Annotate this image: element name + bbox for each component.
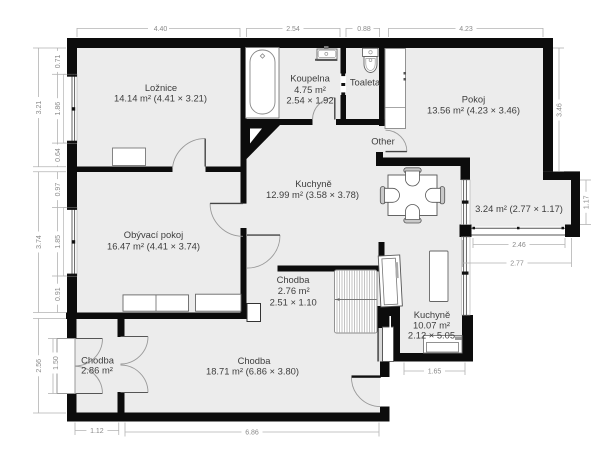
- svg-text:0.97: 0.97: [55, 183, 62, 197]
- svg-text:Obývací pokoj: Obývací pokoj: [124, 229, 183, 240]
- svg-text:2.86 m²: 2.86 m²: [81, 365, 113, 376]
- svg-text:4.40: 4.40: [154, 26, 168, 33]
- svg-text:Pokoj: Pokoj: [462, 94, 485, 105]
- svg-text:0.64: 0.64: [55, 148, 62, 162]
- svg-text:2.12 × 5.05: 2.12 × 5.05: [408, 330, 455, 341]
- svg-text:1.50: 1.50: [53, 356, 60, 370]
- svg-text:2.46: 2.46: [512, 242, 526, 249]
- svg-text:0.71: 0.71: [55, 54, 62, 68]
- svg-text:0.88: 0.88: [357, 26, 371, 33]
- svg-text:1.86: 1.86: [55, 102, 62, 116]
- svg-text:Other: Other: [371, 136, 394, 147]
- svg-text:3.21: 3.21: [36, 101, 43, 115]
- svg-text:Kuchyně: Kuchyně: [295, 178, 331, 189]
- svg-text:2.54: 2.54: [286, 26, 300, 33]
- svg-text:2.51 × 1.10: 2.51 × 1.10: [270, 296, 317, 307]
- svg-text:Koupelna: Koupelna: [290, 73, 330, 84]
- svg-text:16.47 m² (4.41 × 3.74): 16.47 m² (4.41 × 3.74): [107, 241, 200, 252]
- svg-text:4.75 m²: 4.75 m²: [294, 84, 326, 95]
- svg-text:0.91: 0.91: [55, 287, 62, 301]
- svg-text:Chodba: Chodba: [277, 274, 311, 285]
- svg-text:2.77: 2.77: [510, 261, 524, 268]
- svg-text:3.74: 3.74: [36, 235, 43, 249]
- svg-text:1.17: 1.17: [584, 195, 591, 209]
- svg-text:1.12: 1.12: [90, 428, 104, 435]
- svg-text:Ložnice: Ložnice: [145, 82, 177, 93]
- svg-text:1.65: 1.65: [428, 369, 442, 376]
- svg-text:14.14 m² (4.41 × 3.21): 14.14 m² (4.41 × 3.21): [114, 93, 207, 104]
- svg-text:Chodba: Chodba: [238, 355, 272, 366]
- svg-text:Kuchyně: Kuchyně: [414, 309, 450, 320]
- svg-text:2.76 m²: 2.76 m²: [278, 285, 310, 296]
- svg-text:1.85: 1.85: [55, 235, 62, 249]
- svg-text:Toaleta: Toaleta: [350, 77, 381, 88]
- svg-text:2.56: 2.56: [36, 359, 43, 373]
- svg-text:13.56 m² (4.23 × 3.46): 13.56 m² (4.23 × 3.46): [427, 105, 520, 116]
- svg-text:4.23: 4.23: [459, 26, 473, 33]
- svg-text:3.24 m² (2.77 × 1.17): 3.24 m² (2.77 × 1.17): [475, 203, 563, 214]
- svg-text:2.54 × 1.92: 2.54 × 1.92: [286, 95, 333, 106]
- svg-text:18.71 m² (6.86 × 3.80): 18.71 m² (6.86 × 3.80): [206, 366, 299, 377]
- svg-text:12.99 m² (3.58 × 3.78): 12.99 m² (3.58 × 3.78): [266, 189, 359, 200]
- svg-text:3.46: 3.46: [557, 103, 564, 117]
- svg-text:6.86: 6.86: [245, 430, 259, 437]
